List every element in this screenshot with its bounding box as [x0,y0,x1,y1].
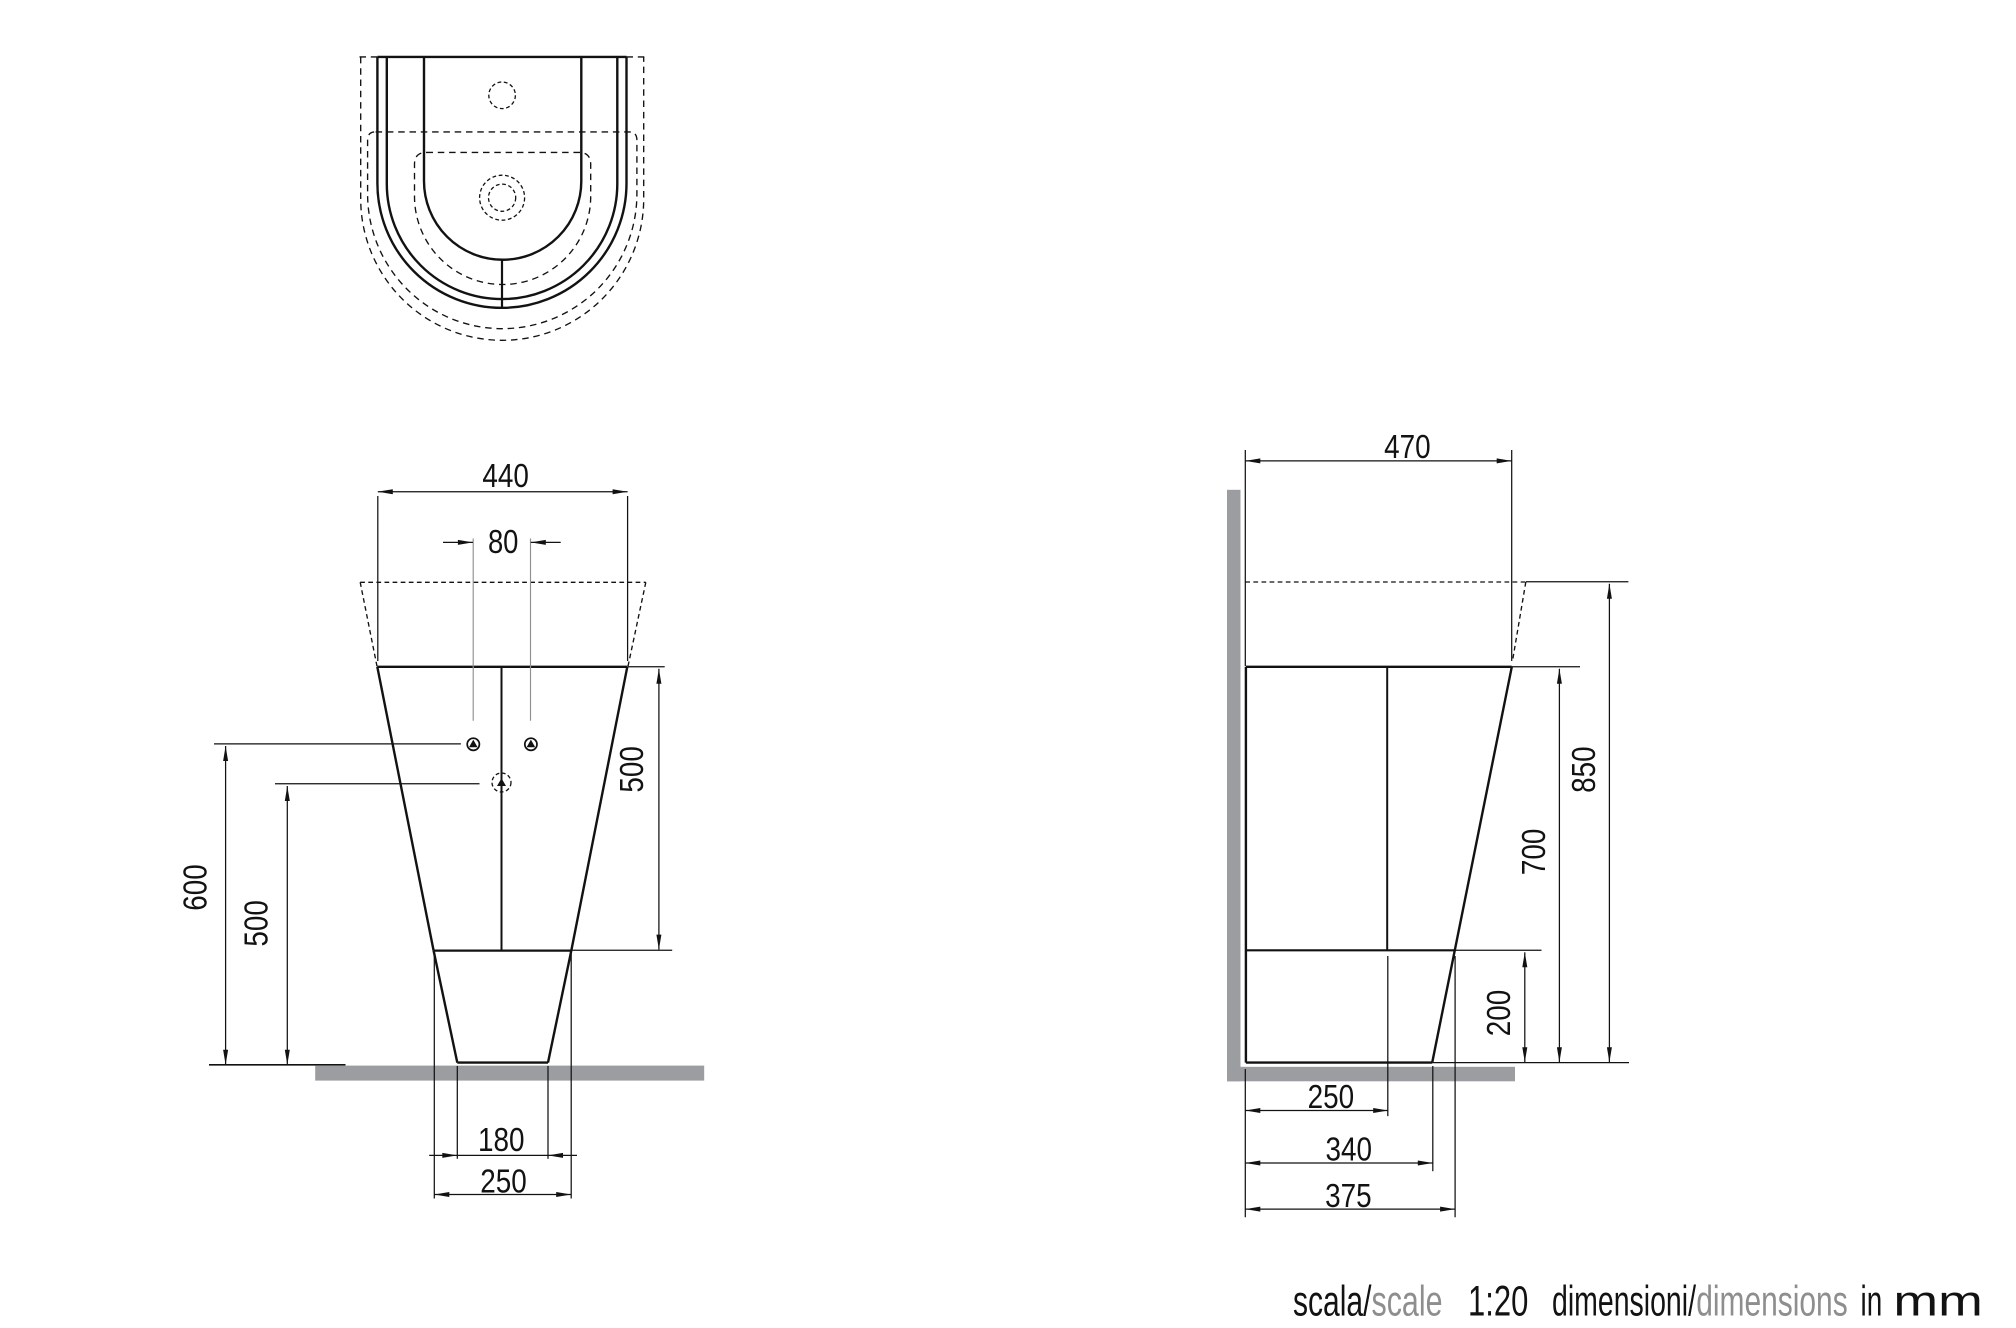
svg-text:dimensions: dimensions [1696,1278,1848,1326]
svg-text:scale: scale [1372,1278,1443,1326]
svg-text:375: 375 [1325,1177,1372,1214]
svg-text:180: 180 [478,1121,525,1158]
svg-text:200: 200 [1480,990,1517,1037]
svg-text:500: 500 [613,746,650,793]
svg-text:250: 250 [1308,1078,1355,1115]
svg-text:440: 440 [482,457,529,494]
svg-text:1:20: 1:20 [1468,1278,1528,1326]
svg-text:in: in [1861,1278,1883,1326]
svg-text:500: 500 [237,900,274,947]
svg-text:850: 850 [1565,746,1602,793]
svg-text:mm: mm [1893,1278,1982,1326]
svg-text:scala/: scala/ [1293,1278,1372,1326]
svg-text:250: 250 [480,1163,527,1200]
svg-text:dimensioni/: dimensioni/ [1552,1278,1696,1326]
svg-text:80: 80 [488,523,519,560]
svg-text:600: 600 [177,864,214,911]
svg-text:700: 700 [1515,829,1552,876]
svg-text:470: 470 [1384,428,1431,465]
svg-text:340: 340 [1325,1131,1372,1168]
